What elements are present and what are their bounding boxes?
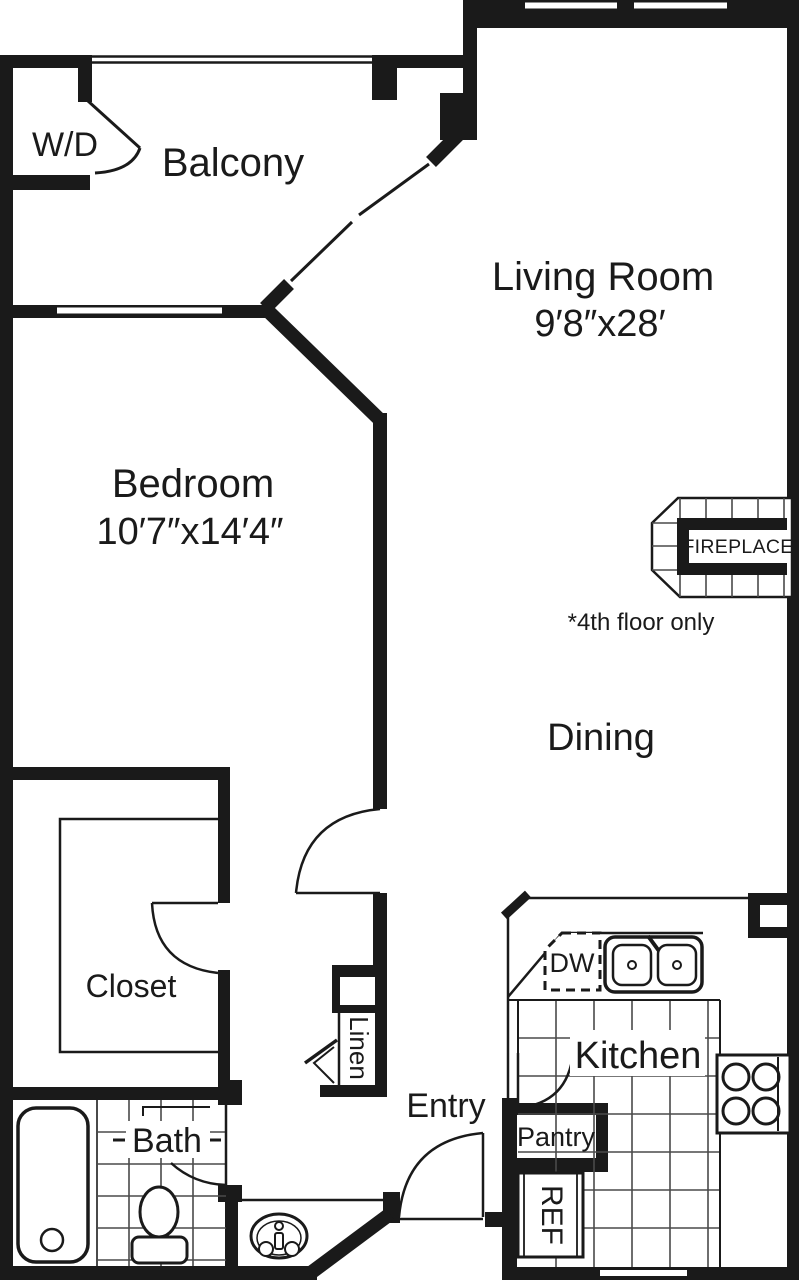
fireplace-note: *4th floor only <box>568 609 715 636</box>
fireplace-label: FIREPLACE <box>682 536 793 558</box>
closet-label: Closet <box>86 968 177 1004</box>
wall-bath-top <box>0 1087 242 1100</box>
wall-linen-right <box>375 965 387 1097</box>
bath-towel-bar <box>143 1107 210 1116</box>
bath-label: Bath <box>132 1122 202 1160</box>
entry-door <box>399 1133 483 1217</box>
floor-plan: Balcony W/D Living Room 9′8″x28′ Bedroom… <box>0 0 799 1280</box>
linen-door <box>305 1040 337 1083</box>
wall-linen-shelf <box>332 1005 375 1013</box>
kitchen-sink-basin-right <box>658 945 696 985</box>
bedroom-door <box>296 809 380 893</box>
sink-handle-right <box>285 1242 299 1256</box>
wd-label: W/D <box>32 126 98 164</box>
wall-bath-junction <box>218 1080 242 1105</box>
wall-living-west <box>463 0 477 100</box>
wall-entry-stub-right <box>485 1212 502 1227</box>
pantry-door <box>518 1053 573 1108</box>
wall-linen-left <box>332 965 340 1012</box>
living-room-label: Living Room <box>492 255 714 299</box>
wall-diag-bedroom <box>268 311 378 418</box>
pantry-label: Pantry <box>517 1122 596 1152</box>
bath-door-swing <box>171 1163 226 1185</box>
wall-bedroom-bottom <box>0 767 230 780</box>
linen-label: Linen <box>344 1016 374 1080</box>
wall-top-living <box>463 0 799 28</box>
wall-pier-a <box>372 55 397 100</box>
exterior-walls <box>0 0 799 1280</box>
kitchen-sink-basin-left <box>613 945 651 985</box>
entry-door-swing <box>399 1133 483 1217</box>
labels: Balcony W/D Living Room 9′8″x28′ Bedroom… <box>32 126 794 1245</box>
dw-label: DW <box>550 948 595 978</box>
wall-linen-bottom <box>320 1085 387 1097</box>
sink-faucet-body <box>275 1233 283 1249</box>
window-diag-1 <box>359 164 429 215</box>
window-kitchen <box>600 1270 687 1276</box>
wall-bedroom-east-upper <box>373 413 387 809</box>
wall-chase-notch <box>760 905 787 927</box>
wall-bath-right-lower <box>225 1200 238 1266</box>
closet-door-swing <box>152 903 218 973</box>
window-bedroom <box>57 308 222 314</box>
ref-label: REF <box>535 1185 568 1245</box>
bedroom-label: Bedroom <box>112 462 274 506</box>
wall-diag-kitchen-stub <box>504 894 528 916</box>
linen-door-panel <box>305 1040 337 1063</box>
bedroom-door-swing <box>296 809 380 893</box>
wall-diag-balcony-stub <box>265 284 289 308</box>
toilet-tank <box>132 1237 187 1263</box>
living-room-dims: 9′8″x28′ <box>534 303 665 345</box>
entry-label: Entry <box>406 1087 485 1125</box>
kitchen-label: Kitchen <box>575 1035 702 1077</box>
pantry-door-swing <box>518 1053 573 1108</box>
wall-bath-bottom <box>0 1266 317 1280</box>
wall-diag-entry-bottom <box>312 1214 390 1272</box>
closet-interior-outline <box>60 819 218 1052</box>
wd-door-swing <box>95 148 140 173</box>
wall-bedroom-east-lower <box>373 893 387 970</box>
balcony-label: Balcony <box>162 141 304 185</box>
wall-closet-right-lower <box>218 970 230 1087</box>
sink-faucet-knob <box>275 1222 283 1230</box>
closet-door <box>152 903 218 973</box>
bedroom-dims: 10′7″x14′4″ <box>97 511 284 553</box>
wall-closet-right-upper <box>218 780 230 903</box>
wall-bath-door-stub <box>218 1185 242 1202</box>
toilet-bowl <box>140 1187 178 1237</box>
wall-kitchen-left <box>502 1098 517 1267</box>
dining-label: Dining <box>547 717 655 759</box>
sink-handle-left <box>259 1242 273 1256</box>
window-top-1 <box>525 3 617 9</box>
wall-wd-right <box>78 55 92 102</box>
wall-wd-bottom <box>0 175 90 190</box>
bathtub <box>18 1108 88 1262</box>
window-top-2 <box>634 3 727 9</box>
entry-sink <box>251 1214 307 1258</box>
diagonal-walls <box>265 131 528 1272</box>
window-diag-2 <box>291 222 352 281</box>
